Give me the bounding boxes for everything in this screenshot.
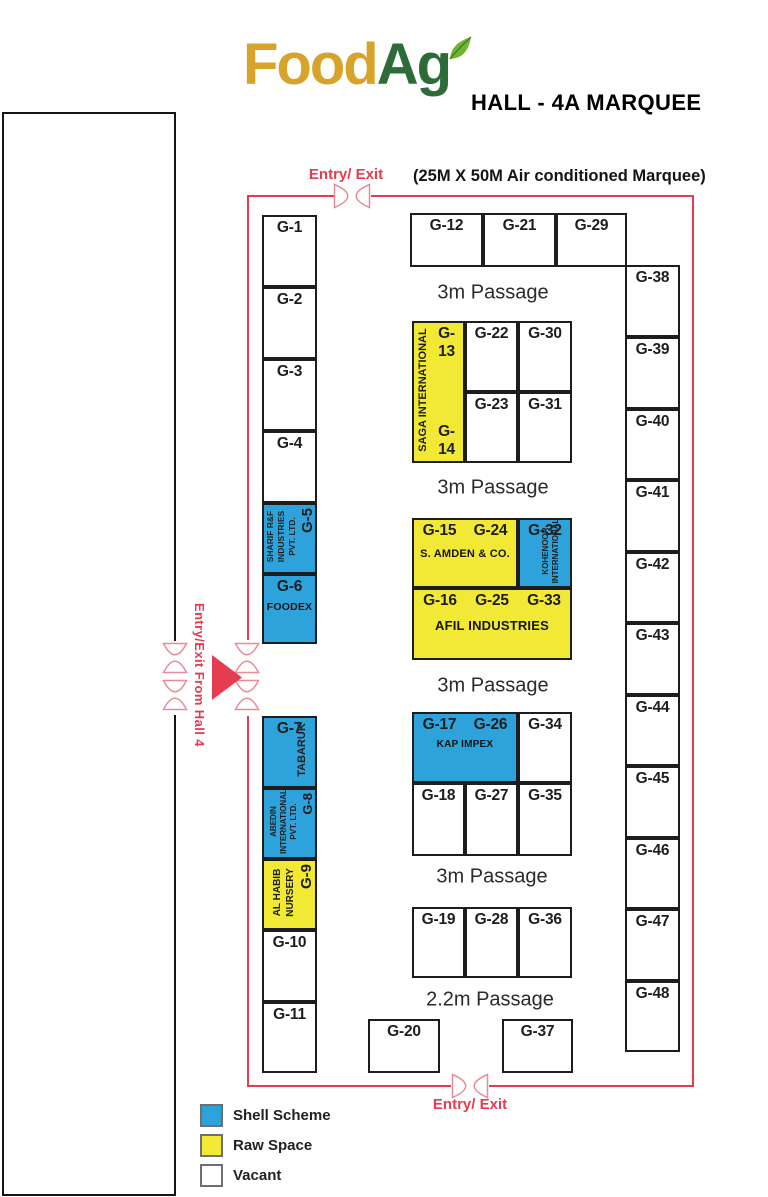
booth-G-19: G-19 [412,907,465,978]
entry-exit-label-top: Entry/ Exit [309,166,383,183]
hall4-entry-arrow-icon [212,655,242,700]
booth-label: G-35 [520,787,570,805]
marquee-border-top [247,195,335,197]
booth-G-41: G-41 [625,480,680,552]
booth-G-16-G-25-G-33: G-16G-25G-33AFIL INDUSTRIES [412,588,572,660]
booth-G-37: G-37 [502,1019,573,1073]
booth-G-8: ABEDININTERNATIONALPVT. LTD.G-8 [262,788,317,859]
booth-vertical-text: INTERNATIONAL [551,518,561,584]
booth-label: G-17 [423,716,457,734]
legend-item: Vacant [200,1164,331,1187]
booth-G-28: G-28 [465,907,518,978]
booth-vertical-text: PVT. LTD. [289,788,299,855]
booth-label: G-11 [264,1006,315,1024]
leaf-icon [446,34,474,62]
booth-G-32: G-32KOHENOORINTERNATIONAL [518,518,572,588]
booth-G-48: G-48 [625,981,680,1052]
booth-G-13-G-14: G-13G-14SAGA INTERNATIONAL [412,321,465,463]
booth-G-47: G-47 [625,909,680,981]
booth-G-6: G-6FOODEX [262,574,317,644]
marquee-border-left [247,716,249,1087]
booth-label: G-21 [485,217,554,235]
booth-label: G-33 [527,592,561,610]
marquee-border-right [692,195,694,1087]
booth-label: G-44 [627,699,678,717]
booth-label: G-31 [520,396,570,414]
booth-label: G-20 [370,1023,438,1041]
door-swing-icon [162,642,188,674]
booth-G-12: G-12 [410,213,483,267]
entry-exit-label-bottom: Entry/ Exit [433,1096,507,1113]
legend-item: Shell Scheme [200,1104,331,1127]
booth-label: G-12 [412,217,481,235]
booth-label: G-39 [627,341,678,359]
booth-label: G-43 [627,627,678,645]
booth-label: G-29 [558,217,625,235]
booth-company-name: AFIL INDUSTRIES [414,618,570,633]
door-swing-icon [162,679,188,711]
booth-label: G-15 [423,522,457,540]
booth-label: G-23 [467,396,516,414]
booth-label: G-16 [423,592,457,610]
booth-G-20: G-20 [368,1019,440,1073]
booth-label: G-18 [414,787,463,805]
legend: Shell SchemeRaw SpaceVacant [200,1104,331,1194]
booth-G-3: G-3 [262,359,317,431]
booth-label: G-38 [627,269,678,287]
passage-label: 3m Passage [437,675,548,698]
booth-G-46: G-46 [625,838,680,909]
booth-label: G-24 [474,522,508,540]
booth-vertical-text: ABEDIN [269,788,279,855]
booth-G-1: G-1 [262,215,317,287]
booth-vertical-text: PVT. LTD. [287,503,298,570]
booth-label: G-19 [414,911,463,929]
legend-swatch-raw [200,1134,223,1157]
booth-G-23: G-23 [465,392,518,463]
booth-G-35: G-35 [518,783,572,856]
booth-label: G-36 [520,911,570,929]
passage-label: 3m Passage [437,477,548,500]
foodag-logo: FoodAg [243,36,474,94]
booth-vertical-text: SAGA INTERNATIONAL [416,321,431,459]
booth-label: G-4 [264,435,315,453]
marquee-border-left [247,195,249,640]
booth-company-name: KAP IMPEX [414,739,516,750]
legend-swatch-vacant [200,1164,223,1187]
booth-G-17-G-26: G-17G-26KAP IMPEX [412,712,518,783]
booth-G-22: G-22 [465,321,518,392]
booth-label: G-27 [467,787,516,805]
booth-label: G-34 [520,716,570,734]
passage-label: 3m Passage [437,282,548,305]
booth-vertical-text: G-9 [297,859,316,926]
hall-title: HALL - 4A MARQUEE [471,90,701,116]
booth-vertical-text: TABARUK [295,716,310,784]
entry-exit-label-hall4: Entry/Exit From Hall 4 [192,603,207,747]
booth-G-29: G-29 [556,213,627,267]
booth-label: G-1 [264,219,315,237]
booth-label: G-48 [627,985,678,1003]
floorplan-canvas: FoodAg HALL - 4A MARQUEE (25M X 50M Air … [0,0,768,1197]
booth-G-10: G-10 [262,930,317,1002]
booth-label: G-45 [627,770,678,788]
legend-label: Shell Scheme [233,1107,331,1124]
booth-G-39: G-39 [625,337,680,409]
booth-label: G-2 [264,291,315,309]
booth-G-11: G-11 [262,1002,317,1073]
booth-label: G-30 [520,325,570,343]
booth-vertical-text: G-8 [299,788,316,855]
marquee-border-bottom [247,1085,451,1087]
booth-vertical-text: KOHENOOR [541,518,551,584]
booth-vertical-text: INTERNATIONAL [279,788,289,855]
legend-item: Raw Space [200,1134,331,1157]
booth-G-5: SHARIF R&FINDUSTRIESPVT. LTD.G-5 [262,503,317,574]
booth-G-15-G-24: G-15G-24S. AMDEN & CO. [412,518,518,588]
booth-vertical-text: AL HABIB [271,859,284,926]
hall-4-building-outline [2,112,176,1196]
marquee-note: (25M X 50M Air conditioned Marquee) [413,167,706,186]
booth-G-31: G-31 [518,392,572,463]
booth-labels: G-15G-24 [414,522,516,540]
passage-label: 3m Passage [436,866,547,889]
door-swing-icon [333,183,371,209]
legend-swatch-shell [200,1104,223,1127]
passage-label: 2.2m Passage [426,989,554,1012]
marquee-border-bottom [489,1085,694,1087]
booth-label: G-46 [627,842,678,860]
booth-G-18: G-18 [412,783,465,856]
booth-label: G-40 [627,413,678,431]
booth-labels: G-17G-26 [414,716,516,734]
booth-G-42: G-42 [625,552,680,623]
booth-G-38: G-38 [625,265,680,337]
booth-company-name: S. AMDEN & CO. [414,548,516,560]
booth-G-4: G-4 [262,431,317,503]
booth-label: G-42 [627,556,678,574]
booth-G-27: G-27 [465,783,518,856]
booth-G-43: G-43 [625,623,680,695]
booth-G-2: G-2 [262,287,317,359]
booth-label: G-25 [475,592,509,610]
booth-G-44: G-44 [625,695,680,766]
booth-label: G-6 [264,578,315,596]
logo-text-food: Food [243,36,377,94]
booth-G-21: G-21 [483,213,556,267]
legend-label: Vacant [233,1167,281,1184]
booth-G-40: G-40 [625,409,680,480]
booth-label: G-22 [467,325,516,343]
booth-G-9: AL HABIBNURSERYG-9 [262,859,317,930]
booth-label: G-26 [474,716,508,734]
booth-vertical-text: G-5 [298,503,318,570]
logo-text-ag: Ag [377,36,450,94]
booth-label: G-37 [504,1023,571,1041]
booth-G-45: G-45 [625,766,680,838]
booth-label: G-3 [264,363,315,381]
booth-label: G-10 [264,934,315,952]
marquee-border-top [371,195,694,197]
booth-G-34: G-34 [518,712,572,783]
booth-G-30: G-30 [518,321,572,392]
booth-label: G-28 [467,911,516,929]
booth-company-name: FOODEX [264,601,315,613]
booth-G-7: G-7TABARUK [262,716,317,788]
booth-label: G-47 [627,913,678,931]
booth-vertical-text: NURSERY [284,859,297,926]
booth-labels: G-16G-25G-33 [414,592,570,610]
booth-G-36: G-36 [518,907,572,978]
booth-vertical-text: SHARIF R&F [265,503,276,570]
booth-vertical-text: INDUSTRIES [276,503,287,570]
booth-label: G-41 [627,484,678,502]
legend-label: Raw Space [233,1137,312,1154]
